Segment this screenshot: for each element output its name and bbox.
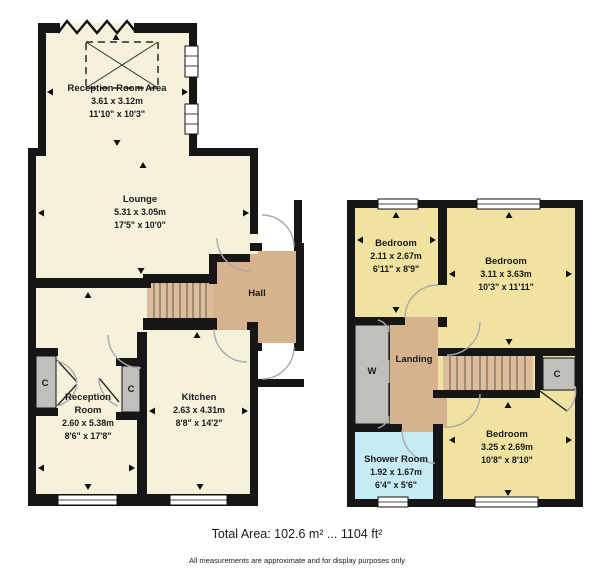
window — [185, 46, 198, 77]
wall-segment — [116, 358, 147, 366]
wall-segment — [433, 424, 443, 499]
landing-doorway — [405, 317, 438, 325]
room-label-reception-area: Reception Room Area — [68, 83, 168, 94]
room-label-hall: Hall — [248, 288, 265, 299]
rear-porch-recess — [258, 351, 302, 379]
room-label-bedroom-rear: Bedroom — [486, 429, 528, 440]
room-dim-imperial: 11'10" x 10'3" — [89, 109, 145, 119]
room-label-reception-room-2: Room — [75, 405, 102, 416]
room-label-lounge: Lounge — [123, 194, 157, 205]
wall-segment — [189, 77, 197, 104]
wall-segment — [134, 23, 197, 33]
room-dim-metric: 3.25 x 2.69m — [481, 442, 533, 452]
window — [378, 199, 418, 209]
wall-segment — [250, 243, 262, 251]
wall-segment — [28, 288, 36, 506]
front-porch-recess — [258, 203, 294, 243]
wall-segment — [250, 148, 258, 234]
wall-segment — [250, 326, 258, 502]
window — [475, 497, 538, 507]
room-label-bedroom-small: Bedroom — [375, 238, 417, 249]
wall-segment — [438, 208, 447, 285]
room-dim-imperial: 8'6" x 17'8" — [65, 431, 112, 441]
window — [170, 495, 227, 505]
window — [185, 104, 198, 134]
wall-segment — [250, 379, 304, 387]
room-label-bedroom-large: Bedroom — [485, 256, 527, 267]
first-staircase — [443, 356, 533, 390]
room-dim-metric: 2.11 x 2.67m — [370, 251, 422, 261]
landing-floor — [390, 325, 438, 432]
wall-segment — [213, 254, 250, 262]
wall-segment — [347, 317, 405, 325]
first-floor-plan: Bedroom 2.11 x 2.67m 6'11" x 8'9" Bedroo… — [347, 199, 583, 507]
cupboard-label: C — [554, 369, 561, 380]
total-area-text: Total Area: 102.6 m² ... 1104 ft² — [212, 527, 383, 541]
wall-segment — [116, 412, 147, 420]
disclaimer-text: All measurements are approximate and for… — [189, 556, 405, 565]
room-dim-metric: 2.60 x 5.38m — [62, 418, 114, 428]
floorplan-svg: Reception Room Area 3.61 x 3.12m 11'10" … — [0, 0, 600, 585]
rear-door-opening — [262, 343, 294, 351]
room-dim-metric: 5.31 x 3.05m — [114, 207, 166, 217]
room-label-shower-room: Shower Room — [364, 454, 428, 465]
window — [378, 497, 408, 507]
room-dim-imperial: 6'11" x 8'9" — [373, 264, 419, 274]
room-dim-metric: 3.11 x 3.63m — [480, 269, 532, 279]
window — [477, 199, 540, 209]
room-label-landing: Landing — [396, 354, 433, 365]
wall-segment — [296, 243, 304, 351]
wall-segment — [28, 348, 58, 356]
room-label-reception-room: Reception — [65, 392, 111, 403]
wall-segment — [143, 274, 217, 283]
room-dim-metric: 1.92 x 1.67m — [370, 467, 422, 477]
room-label-kitchen: Kitchen — [182, 392, 217, 403]
wall-segment — [433, 390, 540, 398]
wall-segment — [390, 424, 402, 432]
wall-segment — [575, 200, 583, 507]
room-dim-metric: 3.61 x 3.12m — [91, 96, 143, 106]
wall-segment — [28, 278, 151, 288]
landing-doorway — [433, 398, 447, 428]
room-dim-imperial: 10'8" x 8'10" — [481, 455, 533, 465]
footer: Total Area: 102.6 m² ... 1104 ft² All me… — [189, 527, 405, 565]
room-dim-metric: 2.63 x 4.31m — [173, 405, 225, 415]
wall-segment — [294, 343, 304, 351]
wall-segment — [143, 318, 217, 330]
wall-segment — [28, 408, 58, 416]
cupboard-label: C — [42, 378, 49, 389]
wall-segment — [189, 23, 197, 48]
wall-segment — [294, 200, 302, 243]
room-dim-imperial: 10'3" x 11'11" — [478, 282, 534, 292]
wall-segment — [438, 348, 575, 356]
wall-segment — [28, 148, 36, 288]
front-door-opening — [262, 243, 294, 251]
room-dim-imperial: 17'5" x 10'0" — [114, 220, 166, 230]
wardrobe-label: W — [368, 366, 377, 377]
cupboard-label: C — [128, 384, 135, 395]
room-dim-imperial: 6'4" x 5'6" — [375, 480, 417, 490]
wall-segment — [535, 356, 543, 390]
wall-segment — [189, 148, 258, 156]
room-dim-imperial: 8'8" x 14'2" — [176, 418, 223, 428]
wall-segment — [347, 200, 355, 507]
floorplan-page: Reception Room Area 3.61 x 3.12m 11'10" … — [0, 0, 600, 585]
wall-segment — [438, 317, 447, 327]
ground-floor-plan: Reception Room Area 3.61 x 3.12m 11'10" … — [28, 21, 304, 506]
window — [58, 495, 117, 505]
wall-segment — [38, 23, 46, 156]
ground-staircase — [147, 283, 213, 318]
